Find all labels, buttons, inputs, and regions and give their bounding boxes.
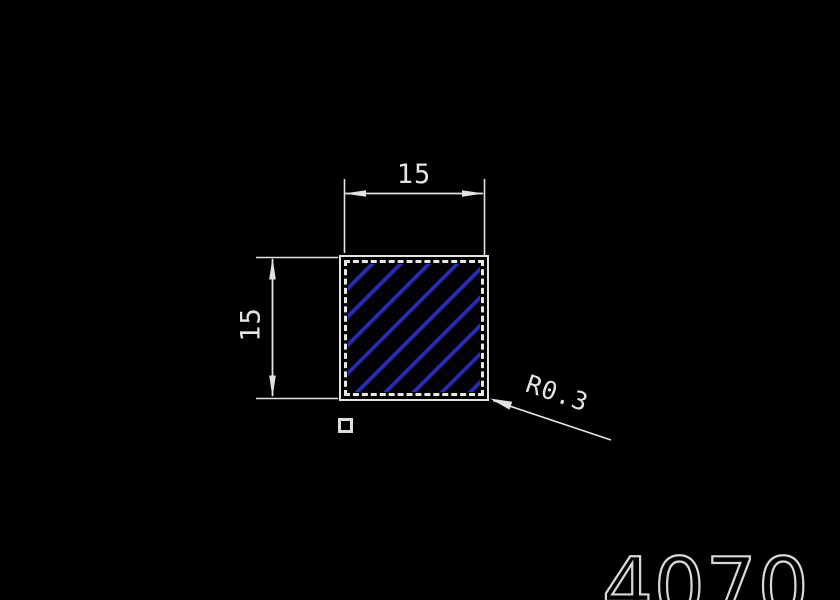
arrowhead-down-icon	[269, 376, 276, 398]
arrowhead-right-icon	[462, 190, 484, 197]
pickbox-marker	[338, 418, 353, 433]
arrowhead-left-icon	[344, 190, 366, 197]
dimension-top[interactable]	[344, 179, 485, 255]
dimension-left[interactable]	[256, 258, 338, 399]
part-number-text[interactable]: 4070	[602, 541, 810, 600]
arrowhead-up-icon	[269, 258, 276, 280]
cad-viewport: 15 15 R0.3 4070	[0, 0, 840, 600]
dimension-lines-layer	[0, 0, 840, 600]
dimension-height-value[interactable]: 15	[238, 303, 265, 347]
arrowhead-leader-icon	[490, 399, 512, 410]
part-number-layer: 4070	[598, 540, 840, 600]
dimension-width-value[interactable]: 15	[394, 161, 434, 188]
